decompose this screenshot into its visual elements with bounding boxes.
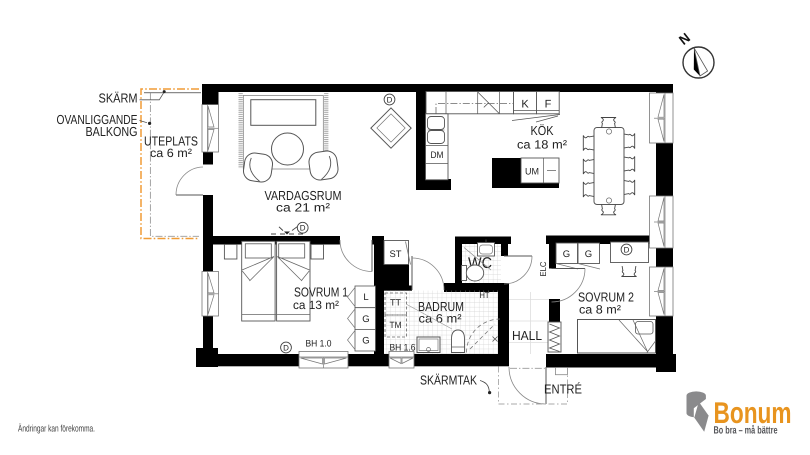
svg-text:Bo bra – må bättre: Bo bra – må bättre bbox=[714, 425, 778, 437]
svg-text:G: G bbox=[563, 249, 570, 260]
svg-text:ca 6 m²: ca 6 m² bbox=[419, 312, 462, 326]
svg-text:D: D bbox=[283, 344, 289, 353]
svg-text:ca 8 m²: ca 8 m² bbox=[579, 303, 621, 317]
svg-text:K: K bbox=[521, 99, 529, 111]
svg-text:BALKONG: BALKONG bbox=[86, 124, 138, 139]
svg-text:SKÄRM: SKÄRM bbox=[99, 91, 138, 106]
svg-text:L: L bbox=[363, 292, 368, 303]
svg-text:ELC: ELC bbox=[538, 262, 548, 277]
svg-text:ca 13 m²: ca 13 m² bbox=[293, 298, 339, 312]
svg-text:D: D bbox=[387, 96, 393, 105]
svg-text:BH 1.0: BH 1.0 bbox=[306, 339, 332, 350]
svg-text:ENTRÉ: ENTRÉ bbox=[544, 382, 582, 397]
svg-text:UM: UM bbox=[525, 167, 539, 178]
svg-text:G: G bbox=[362, 314, 369, 325]
svg-text:Ändringar kan förekomma.: Ändringar kan förekomma. bbox=[18, 424, 95, 435]
svg-text:ca 6 m²: ca 6 m² bbox=[150, 146, 192, 160]
svg-text:SKÄRMTAK: SKÄRMTAK bbox=[420, 373, 477, 388]
svg-text:HT: HT bbox=[480, 290, 490, 300]
svg-text:G: G bbox=[362, 336, 369, 347]
svg-text:ca 18 m²: ca 18 m² bbox=[517, 138, 567, 152]
svg-text:KÖK: KÖK bbox=[531, 123, 554, 138]
svg-text:F: F bbox=[545, 99, 552, 111]
svg-text:G: G bbox=[585, 249, 592, 260]
svg-text:ca 21 m²: ca 21 m² bbox=[276, 201, 330, 215]
svg-text:D: D bbox=[624, 246, 630, 255]
svg-text:D: D bbox=[300, 224, 306, 233]
svg-text:HALL: HALL bbox=[512, 328, 542, 343]
svg-text:TT: TT bbox=[390, 298, 401, 308]
svg-text:ST: ST bbox=[390, 249, 402, 260]
svg-text:DM: DM bbox=[431, 150, 444, 161]
svg-text:TM: TM bbox=[390, 320, 402, 330]
